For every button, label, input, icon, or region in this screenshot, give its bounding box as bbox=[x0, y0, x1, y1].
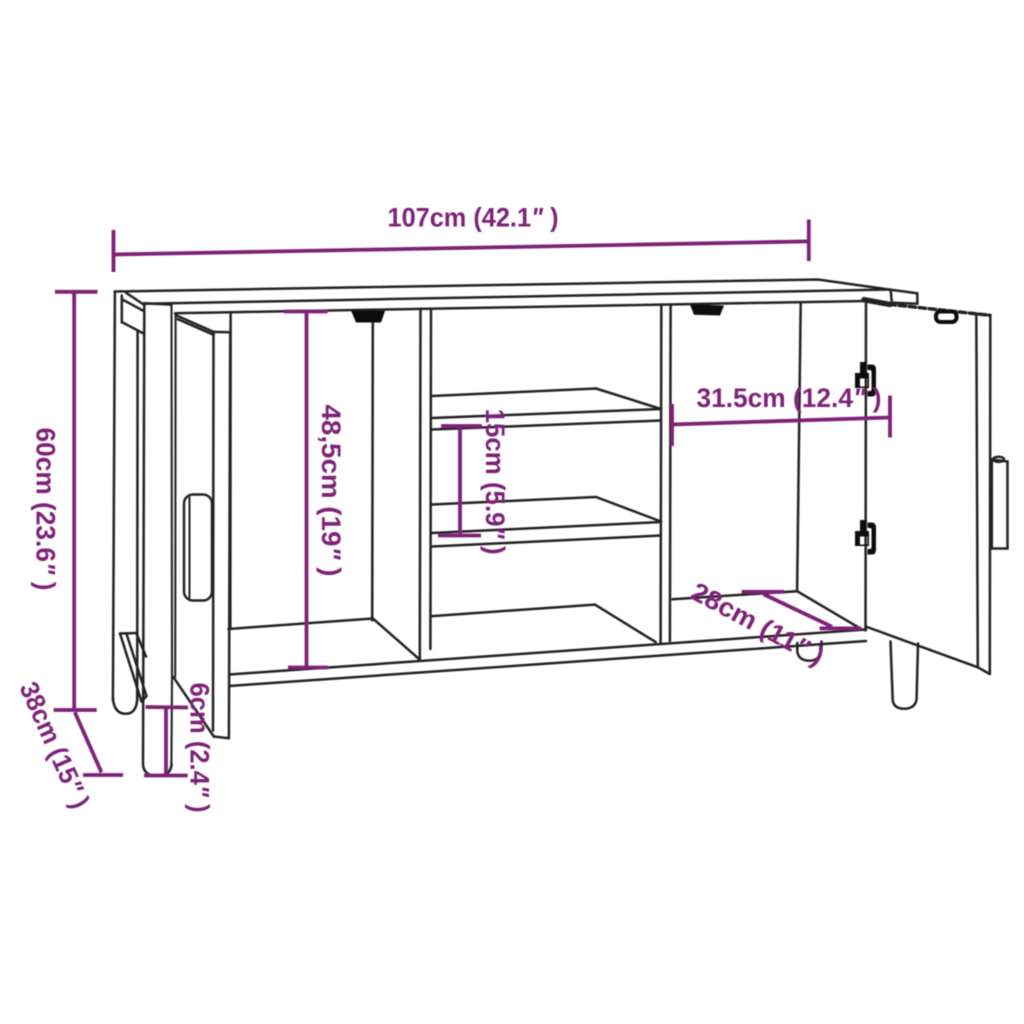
svg-text:6cm (2.4" ): 6cm (2.4" ) bbox=[185, 683, 215, 813]
svg-text:15cm (5.9" ): 15cm (5.9" ) bbox=[480, 409, 510, 555]
svg-text:48,5cm (19" ): 48,5cm (19" ) bbox=[316, 405, 346, 577]
svg-text:31.5cm (12.4" ): 31.5cm (12.4" ) bbox=[697, 383, 882, 413]
svg-text:38cm (15" ): 38cm (15" ) bbox=[14, 677, 96, 813]
svg-text:60cm (23.6" ): 60cm (23.6" ) bbox=[31, 428, 61, 591]
svg-text:107cm (42.1" ): 107cm (42.1" ) bbox=[388, 202, 559, 232]
